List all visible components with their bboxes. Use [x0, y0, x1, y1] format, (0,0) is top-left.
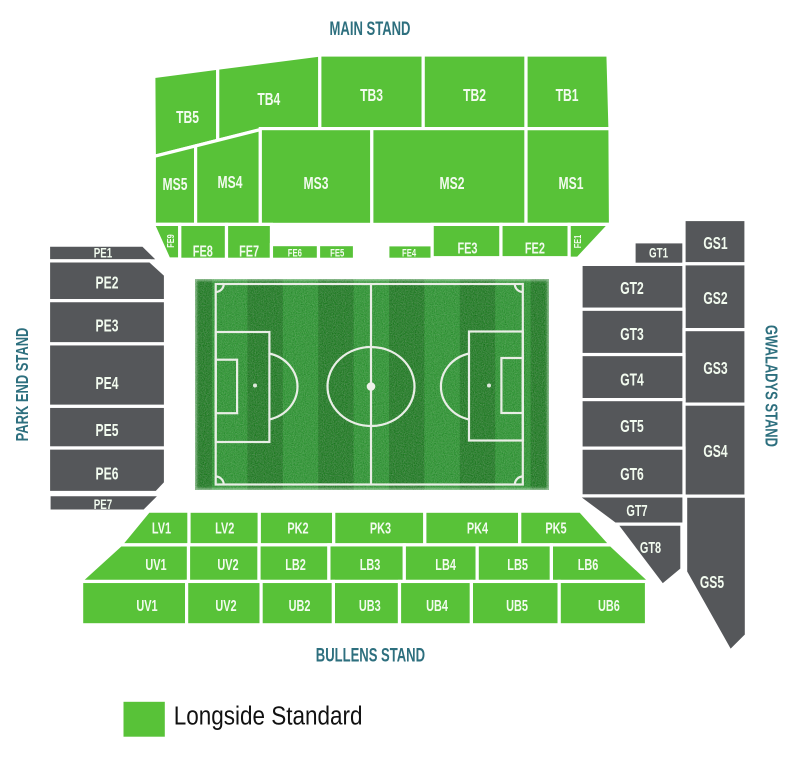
svg-text:UV2: UV2	[217, 556, 238, 573]
svg-text:BULLENS STAND: BULLENS STAND	[316, 644, 425, 666]
svg-text:MS4: MS4	[218, 173, 243, 193]
svg-text:MS1: MS1	[559, 174, 584, 194]
svg-text:UB5: UB5	[506, 597, 528, 614]
svg-text:PE1: PE1	[94, 245, 113, 261]
svg-text:PARK END STAND: PARK END STAND	[13, 328, 32, 442]
svg-text:LB2: LB2	[285, 556, 306, 573]
svg-text:GT3: GT3	[620, 325, 644, 345]
svg-text:LB6: LB6	[578, 556, 599, 573]
svg-text:FE3: FE3	[457, 240, 477, 257]
svg-text:PE5: PE5	[96, 421, 119, 441]
svg-text:MS2: MS2	[440, 174, 465, 194]
svg-text:PE7: PE7	[94, 496, 113, 512]
svg-text:PE6: PE6	[96, 464, 119, 484]
svg-text:UB2: UB2	[289, 597, 311, 614]
svg-text:GS3: GS3	[703, 359, 727, 379]
svg-text:FE7: FE7	[239, 243, 259, 260]
svg-text:GT8: GT8	[640, 539, 662, 556]
svg-text:FE6: FE6	[288, 247, 302, 260]
svg-text:GT2: GT2	[620, 279, 644, 299]
svg-text:Longside Standard: Longside Standard	[174, 702, 363, 731]
svg-text:MAIN STAND: MAIN STAND	[330, 17, 411, 39]
svg-text:PE3: PE3	[96, 317, 119, 337]
svg-text:FE4: FE4	[402, 247, 417, 260]
svg-text:FE9: FE9	[165, 234, 177, 247]
svg-text:PK3: PK3	[370, 520, 391, 537]
svg-text:TB3: TB3	[360, 86, 383, 106]
svg-text:FE1: FE1	[572, 235, 584, 248]
svg-text:UV1: UV1	[136, 597, 158, 614]
svg-text:LV2: LV2	[215, 520, 234, 537]
svg-text:MS5: MS5	[163, 175, 188, 195]
svg-text:GT5: GT5	[620, 417, 644, 437]
svg-text:GS5: GS5	[700, 573, 724, 593]
svg-text:PK5: PK5	[545, 520, 567, 537]
svg-text:FE5: FE5	[330, 247, 345, 260]
svg-text:GWALADYS STAND: GWALADYS STAND	[761, 325, 780, 447]
svg-text:PK2: PK2	[287, 520, 308, 537]
svg-text:FE2: FE2	[525, 240, 545, 257]
svg-text:GS1: GS1	[703, 234, 727, 254]
svg-text:FE8: FE8	[193, 243, 213, 260]
svg-text:GT1: GT1	[649, 245, 668, 261]
svg-text:LB5: LB5	[507, 556, 528, 573]
svg-text:UV1: UV1	[145, 556, 167, 573]
svg-text:UB6: UB6	[598, 597, 620, 614]
svg-text:GS2: GS2	[703, 289, 727, 309]
svg-text:PE4: PE4	[96, 374, 119, 394]
svg-text:UV2: UV2	[215, 597, 236, 614]
svg-text:TB4: TB4	[257, 90, 280, 110]
svg-text:LB3: LB3	[360, 556, 381, 573]
svg-text:GT4: GT4	[620, 370, 644, 390]
svg-text:LB4: LB4	[435, 556, 456, 573]
svg-text:MS3: MS3	[304, 174, 329, 194]
svg-text:UB4: UB4	[426, 597, 448, 614]
svg-text:LV1: LV1	[152, 520, 172, 537]
svg-text:GT6: GT6	[620, 465, 644, 485]
svg-text:TB5: TB5	[176, 108, 199, 128]
svg-text:UB3: UB3	[359, 597, 381, 614]
svg-text:GT7: GT7	[626, 502, 647, 519]
svg-text:PE2: PE2	[96, 274, 119, 294]
svg-text:PK4: PK4	[467, 520, 489, 537]
svg-text:TB1: TB1	[556, 86, 579, 106]
svg-text:GS4: GS4	[703, 442, 728, 462]
svg-text:TB2: TB2	[463, 86, 486, 106]
